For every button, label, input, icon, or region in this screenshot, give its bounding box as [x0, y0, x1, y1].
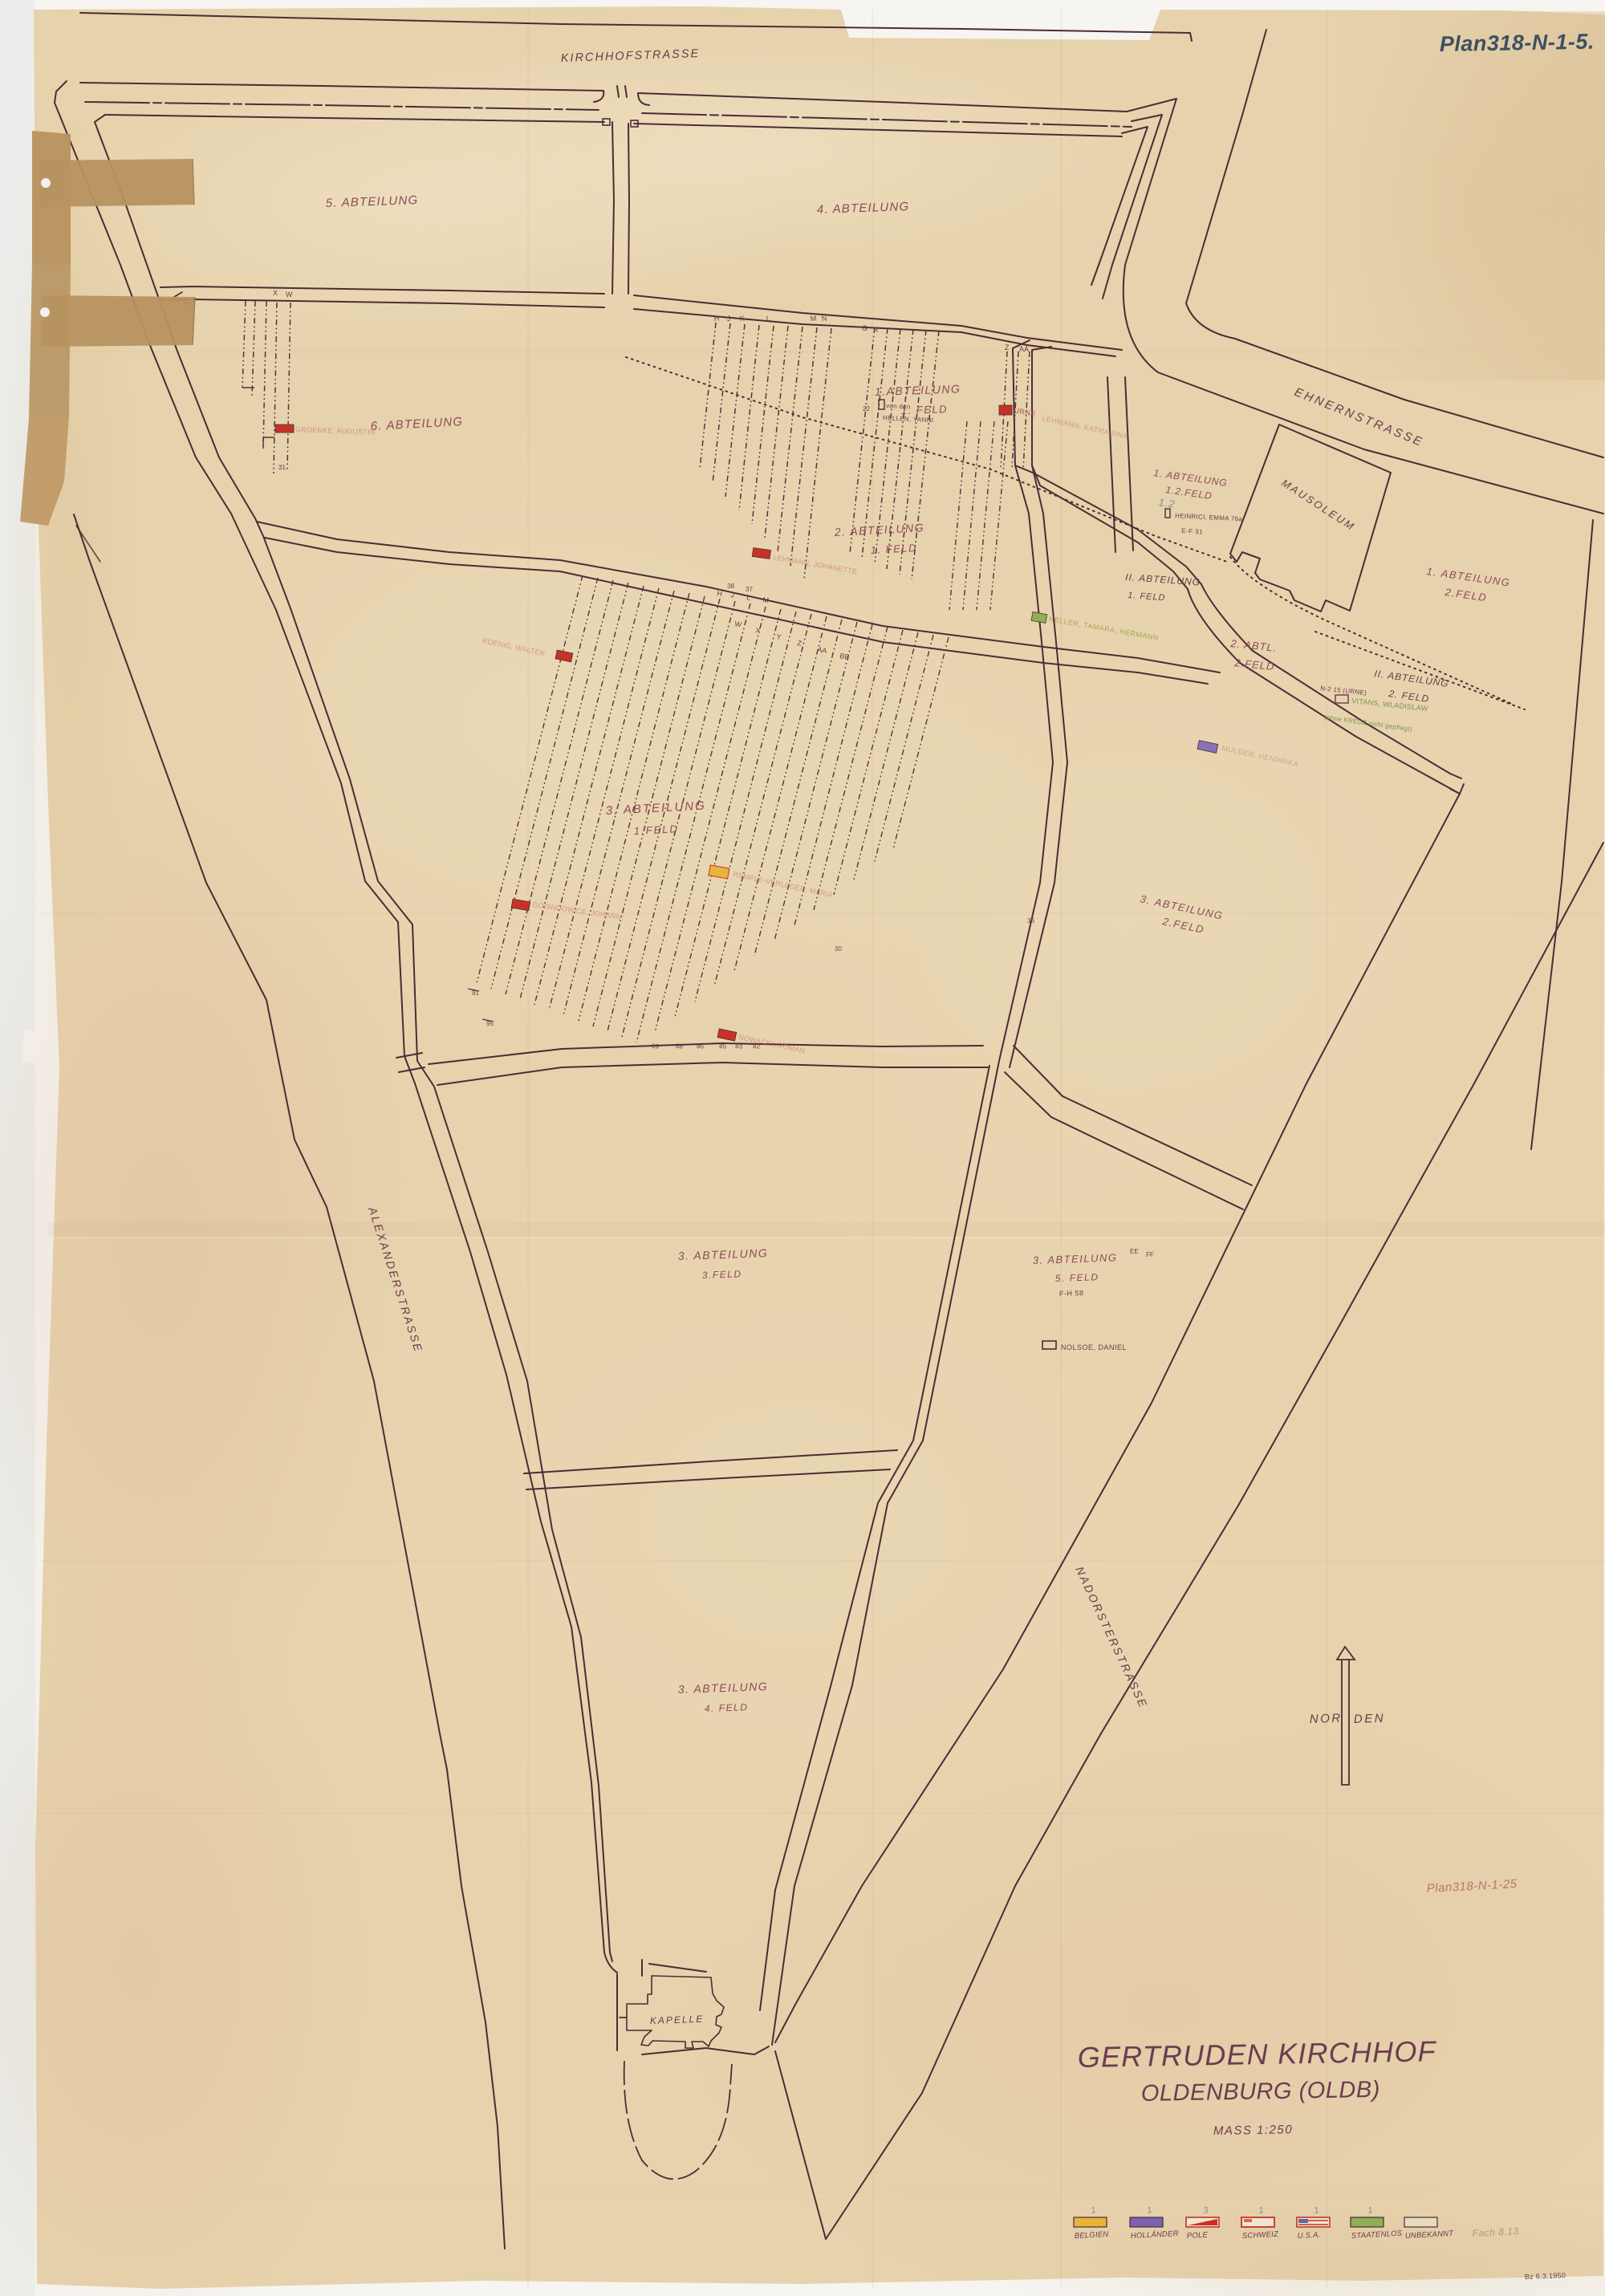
- svg-text:AA: AA: [1019, 345, 1029, 353]
- svg-text:89: 89: [652, 1042, 660, 1050]
- svg-text:4. FELD: 4. FELD: [705, 1701, 749, 1714]
- svg-text:AA: AA: [817, 645, 828, 655]
- svg-text:BB: BB: [839, 652, 851, 661]
- svg-text:NOLSOE, DANIEL: NOLSOE, DANIEL: [1061, 1343, 1127, 1351]
- svg-text:U.S.A.: U.S.A.: [1298, 2231, 1321, 2241]
- svg-text:FF: FF: [1146, 1251, 1154, 1258]
- svg-text:H: H: [713, 315, 719, 323]
- svg-text:86: 86: [697, 1042, 705, 1050]
- svg-text:R: R: [873, 326, 879, 334]
- svg-text:22: 22: [863, 405, 870, 412]
- svg-text:85: 85: [719, 1042, 727, 1050]
- svg-text:30: 30: [835, 945, 842, 953]
- svg-text:36: 36: [1027, 917, 1034, 924]
- svg-text:EE: EE: [1130, 1248, 1139, 1255]
- svg-text:MASS 1:250: MASS 1:250: [1213, 2123, 1294, 2138]
- svg-text:G: G: [862, 324, 868, 332]
- svg-text:F-H 58: F-H 58: [1059, 1289, 1084, 1298]
- svg-text:Bz 6.3.1950: Bz 6.3.1950: [1525, 2271, 1566, 2281]
- svg-text:1.2: 1.2: [1158, 496, 1176, 510]
- svg-text:BELGIEN: BELGIEN: [1075, 2230, 1109, 2241]
- svg-text:Plan318-N-1-5.: Plan318-N-1-5.: [1440, 30, 1595, 56]
- svg-text:1.FELD: 1.FELD: [633, 823, 679, 837]
- svg-text:5. FELD: 5. FELD: [1055, 1271, 1099, 1284]
- svg-text:1. FELD: 1. FELD: [870, 542, 917, 556]
- svg-text:91: 91: [472, 990, 479, 997]
- svg-text:K: K: [739, 315, 745, 323]
- svg-text:W: W: [286, 291, 293, 299]
- svg-text:NOR: NOR: [1310, 1712, 1343, 1726]
- svg-text:37: 37: [746, 586, 753, 593]
- svg-text:X: X: [273, 289, 278, 297]
- svg-text:95: 95: [486, 1020, 494, 1027]
- svg-text:POLE: POLE: [1187, 2231, 1209, 2241]
- svg-text:M: M: [810, 314, 816, 322]
- svg-text:83: 83: [735, 1042, 743, 1050]
- svg-text:88: 88: [676, 1042, 684, 1050]
- svg-text:3.FELD: 3.FELD: [702, 1268, 742, 1281]
- svg-text:OLDENBURG (OLDB): OLDENBURG (OLDB): [1141, 2077, 1381, 2107]
- svg-text:38: 38: [727, 583, 734, 590]
- svg-text:31: 31: [278, 464, 286, 471]
- svg-text:von den: von den: [886, 402, 911, 411]
- svg-text:N: N: [821, 315, 827, 323]
- svg-text:DEN: DEN: [1354, 1712, 1386, 1726]
- svg-text:L: L: [766, 315, 770, 323]
- svg-text:KAPELLE: KAPELLE: [650, 2014, 705, 2026]
- svg-text:Z: Z: [1005, 343, 1010, 352]
- svg-text:J: J: [726, 315, 730, 323]
- svg-text:82: 82: [753, 1042, 761, 1050]
- svg-text:E-F 31: E-F 31: [1181, 527, 1203, 535]
- svg-text:GERTRUDEN KIRCHHOF: GERTRUDEN KIRCHHOF: [1077, 2034, 1436, 2074]
